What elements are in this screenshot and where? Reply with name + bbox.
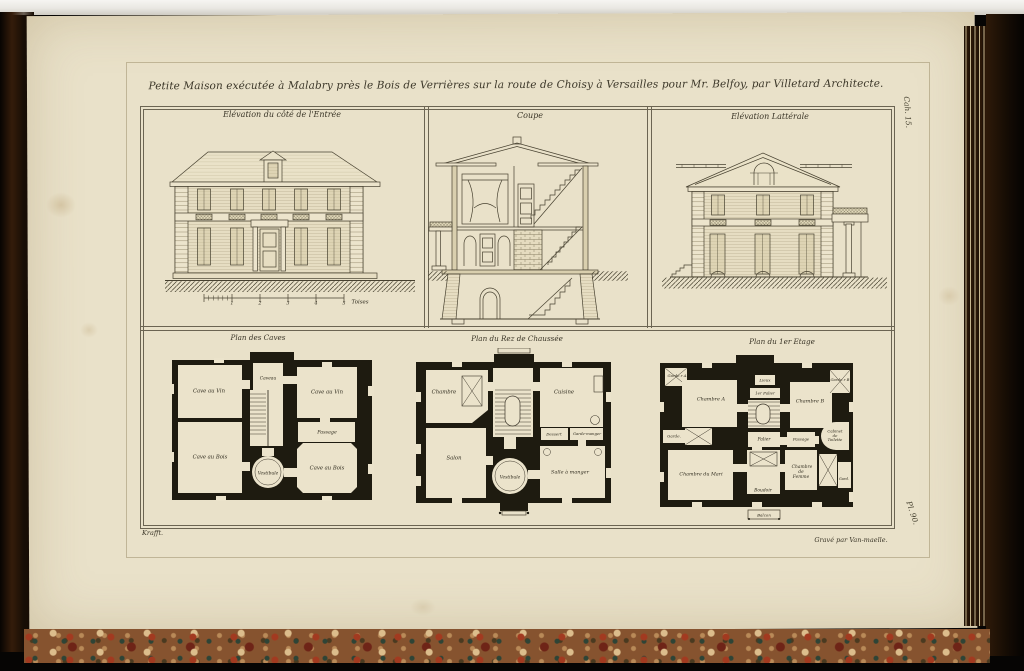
room	[426, 370, 488, 423]
room-label-vestibule: Vestibule	[500, 475, 520, 480]
side-elevation-drawing	[662, 138, 892, 306]
room-label-boudoir: Boudoir	[754, 488, 772, 493]
room-label-passage: Passage	[793, 437, 809, 442]
front-elevation-drawing	[163, 133, 418, 308]
masonry-pier	[514, 230, 542, 270]
panel-title-front-elevation: Elévation du côté de l'Entrée	[160, 110, 404, 119]
marbled-endpaper	[24, 629, 990, 663]
wall-section	[452, 166, 457, 270]
room-label-cabinet-de-toilette: Cabinet de Toilette	[827, 430, 843, 443]
porch-balustrade	[833, 208, 867, 214]
plan-title-premier-etage: Plan du 1er Etage	[707, 337, 857, 346]
room-label-chambre-a: Chambre A	[697, 396, 725, 402]
plan-title-rez-de-chaussee: Plan du Rez de Chaussée	[437, 334, 597, 343]
cornice	[688, 187, 838, 192]
section-drawing	[428, 132, 628, 332]
cellar-plan-walls	[170, 352, 374, 501]
door-entablature	[251, 220, 288, 227]
front-elevation-lines	[165, 151, 415, 292]
panel-divider-2	[647, 107, 652, 328]
corner-rustication	[821, 192, 833, 278]
room-label-chambre-du-mari: Chambre du Mari	[679, 471, 722, 476]
book-photo: { "colors": { "page": "#e9e1c9", "ink": …	[0, 0, 1024, 671]
draftsman-credit: Krafft.	[142, 529, 163, 537]
corner-rustication	[350, 187, 363, 274]
room-label-premier-palier: 1er Palier	[755, 391, 775, 396]
corner-rustication	[175, 187, 188, 274]
upper-stair-steps	[531, 170, 580, 219]
statue-niche	[498, 236, 510, 266]
first-floor-plan-walls	[660, 355, 853, 520]
room-label-chambre: Chambre	[432, 389, 457, 395]
room-label-cave-au-bois: Cave au Bois	[310, 465, 345, 471]
pediment	[686, 153, 840, 187]
porch-column	[846, 224, 852, 273]
porch-entablature	[832, 214, 868, 222]
cornice	[170, 182, 380, 187]
wall-section	[583, 166, 588, 270]
room-label-dessert: Dessert	[546, 432, 562, 437]
room-label-cave-au-bois: Cave au Bois	[193, 454, 228, 460]
room-label-garde-manger: Garde-manger	[573, 432, 601, 436]
door-pilaster	[281, 227, 286, 271]
room-label-garde-robe-b: Garde.r B	[830, 378, 849, 382]
scale-tick-label: 3	[286, 300, 289, 306]
scale-bar	[202, 293, 352, 305]
room	[540, 368, 603, 427]
room-label-salle-a-manger: Salle à manger	[551, 469, 589, 475]
room-label-vestibule: Vestibule	[258, 471, 278, 476]
page-edges-right	[964, 26, 988, 626]
panel-title-coupe: Coupe	[430, 111, 630, 120]
room-label-lieux: Lieux	[759, 378, 770, 383]
floor-slab	[442, 270, 598, 274]
scale-unit-label: Toises	[351, 299, 368, 305]
plate-title: Petite Maison exécutée à Malabry près le…	[146, 78, 886, 93]
stair-newel	[505, 396, 520, 426]
side-elevation-lines	[662, 153, 887, 289]
scale-tick-label: 5	[342, 300, 345, 306]
room	[838, 462, 851, 488]
ground-hatch	[592, 271, 628, 281]
room-label-garde-robe-a: Garde.r A	[668, 374, 687, 378]
door-pilaster	[253, 227, 258, 271]
room	[682, 380, 737, 427]
ground-hatch	[428, 271, 448, 281]
perron-steps	[502, 511, 526, 515]
lower-stair-steps	[548, 227, 580, 265]
corner-rustication	[692, 192, 704, 278]
plinth	[173, 273, 377, 279]
room-label-cave-au-vin: Cave au Vin	[311, 389, 343, 395]
stair-newel	[756, 404, 770, 424]
room-label-caveau: Caveau	[260, 376, 277, 381]
room-label-cave-au-vin: Cave au Vin	[193, 388, 225, 394]
room-label-chambre-de-femme: Chambre de Femme	[792, 465, 811, 480]
room-label-cuisine: Cuisine	[554, 389, 574, 395]
room-label-gard: Gard.	[839, 477, 849, 481]
room	[426, 428, 486, 498]
panel-title-side-elevation: Elévation Lattérale	[660, 112, 880, 121]
cellar-plan-drawing	[170, 350, 375, 505]
statue-niche	[464, 236, 476, 266]
plan-title-caves: Plan des Caves	[183, 333, 333, 342]
room	[790, 382, 832, 428]
engraver-credit: Gravé par Van-maelle.	[806, 536, 896, 544]
room-label-garde: Garde.	[667, 434, 681, 439]
scale-tick-label: 2	[258, 300, 261, 306]
section-lines	[428, 137, 628, 324]
ground-hatch	[165, 281, 415, 292]
room-label-palier: Palier	[758, 437, 771, 442]
ground-hatch	[662, 278, 887, 289]
room-label-balcon: Balcon	[757, 513, 771, 518]
room-label-chambre-b: Chambre B	[796, 398, 824, 404]
scale-tick-label: 1	[230, 300, 233, 306]
scale-tick-label: 4	[314, 300, 317, 306]
room-label-passage: Passage	[317, 429, 337, 434]
side-steps	[672, 265, 692, 277]
book-cover-right	[986, 14, 1024, 656]
room-label-salon: Salon	[446, 455, 461, 461]
porch-column-section	[436, 231, 441, 266]
